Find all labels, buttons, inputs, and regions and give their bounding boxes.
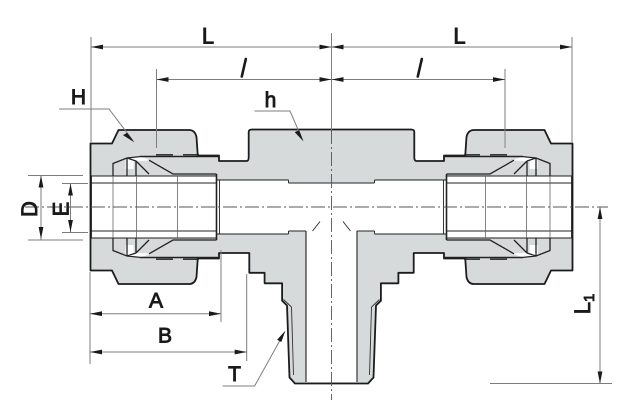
svg-text:E: E (49, 202, 74, 217)
svg-text:L: L (453, 24, 465, 49)
svg-text:B: B (158, 325, 172, 348)
svg-text:D: D (17, 201, 42, 217)
svg-text:H: H (71, 86, 86, 109)
svg-text:L: L (202, 24, 214, 49)
svg-text:A: A (149, 290, 163, 313)
svg-text:h: h (265, 89, 277, 112)
svg-text:T: T (228, 363, 241, 386)
